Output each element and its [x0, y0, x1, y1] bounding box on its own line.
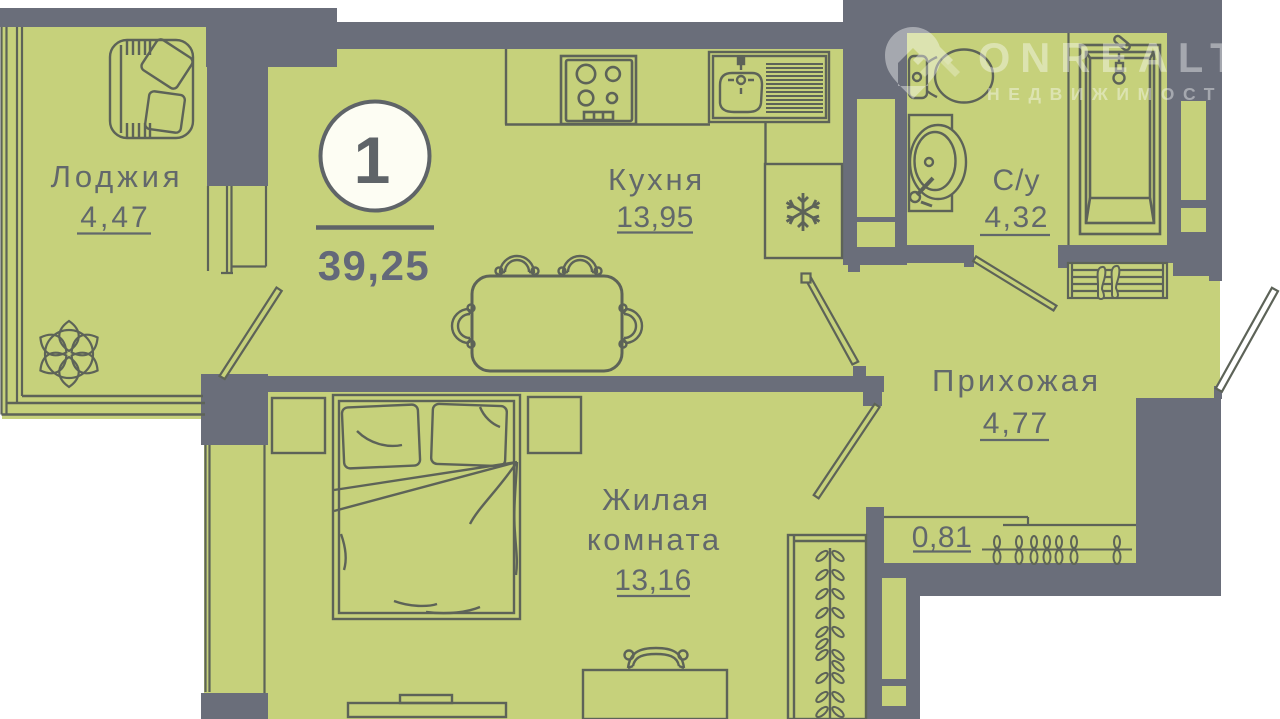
svg-text:13,95: 13,95 — [616, 201, 694, 234]
svg-text:комната: комната — [587, 522, 722, 557]
svg-text:4,47: 4,47 — [80, 201, 150, 234]
svg-text:ONREALT: ONREALT — [978, 34, 1246, 81]
svg-text:Лоджия: Лоджия — [51, 159, 184, 194]
svg-text:13,16: 13,16 — [614, 564, 692, 597]
svg-text:Кухня: Кухня — [608, 162, 705, 197]
svg-text:Прихожая: Прихожая — [932, 363, 1101, 398]
svg-text:0,81: 0,81 — [912, 521, 972, 554]
svg-text:4,32: 4,32 — [985, 201, 1049, 234]
svg-text:Жилая: Жилая — [602, 482, 710, 517]
svg-text:НЕДВИЖИМОСТЬ: НЕДВИЖИМОСТЬ — [987, 84, 1244, 104]
svg-text:1: 1 — [354, 123, 391, 197]
svg-text:С/у: С/у — [993, 164, 1041, 197]
svg-text:4,77: 4,77 — [983, 407, 1049, 440]
svg-text:39,25: 39,25 — [318, 242, 431, 289]
